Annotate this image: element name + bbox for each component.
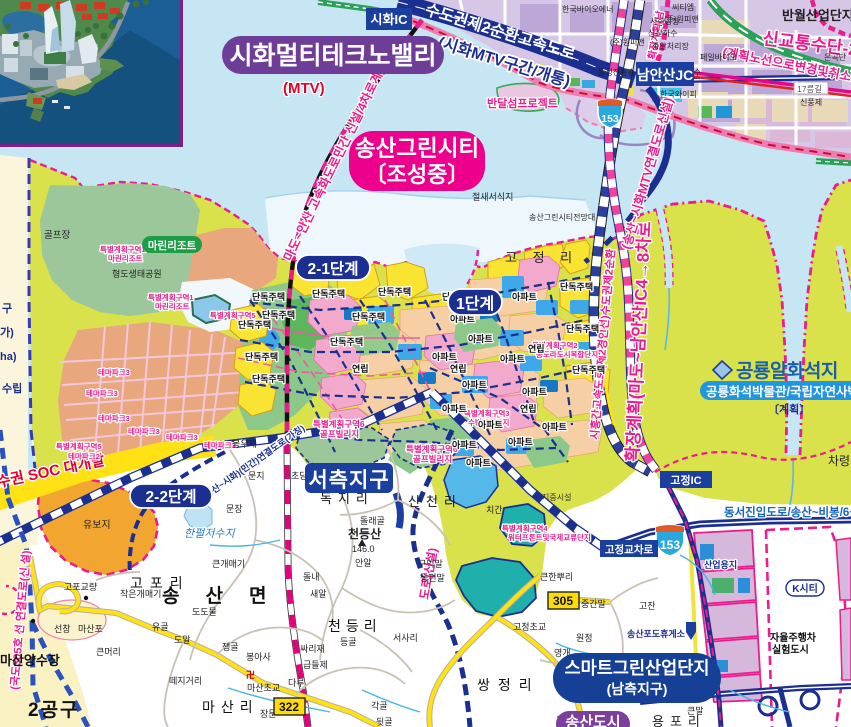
svg-text:마린리조트: 마린리조트 [148, 239, 197, 252]
svg-text:큰한뿌리: 큰한뿌리 [540, 572, 573, 582]
svg-text:떼지거리: 떼지거리 [169, 676, 202, 686]
svg-text:반달섬프로젝트: 반달섬프로젝트 [487, 96, 558, 110]
svg-text:아파트: 아파트 [522, 386, 548, 397]
svg-text:테마파크3: 테마파크3 [86, 388, 118, 398]
svg-text:아파트: 아파트 [442, 403, 468, 414]
svg-text:(MTV): (MTV) [283, 80, 325, 97]
svg-text:천등리: 천등리 [328, 618, 382, 634]
svg-text:특별계획구역5: 특별계획구역5 [56, 441, 102, 451]
svg-text:안알: 안알 [355, 558, 372, 568]
svg-text:절새서식지: 절새서식지 [472, 191, 513, 202]
svg-text:연립: 연립 [450, 363, 467, 374]
svg-text:특별계획구역1: 특별계획구역1 [148, 292, 194, 302]
svg-text:지중시설: 지중시설 [542, 492, 571, 502]
svg-text:큰머리: 큰머리 [96, 647, 121, 657]
svg-text:ha): ha) [0, 351, 17, 363]
svg-text:유보지: 유보지 [83, 519, 111, 531]
svg-text:K시티: K시티 [792, 582, 818, 595]
svg-text:반월산업단지: 반월산업단지 [782, 8, 851, 23]
svg-text:고정초교: 고정초교 [513, 622, 546, 632]
svg-text:한국와이피: 한국와이피 [660, 89, 697, 99]
svg-text:봉아사: 봉아사 [246, 652, 272, 662]
svg-text:동서진입도로/송산~비봉/6~8: 동서진입도로/송산~비봉/6~8 [724, 505, 851, 519]
svg-text:卍: 卍 [246, 670, 255, 680]
svg-text:송산그린시티전망대: 송산그린시티전망대 [529, 212, 595, 222]
svg-text:은곡단: 은곡단 [824, 52, 847, 62]
svg-text:단독주택: 단독주택 [560, 281, 593, 292]
svg-text:단독주택: 단독주택 [252, 291, 285, 302]
svg-text:싸리재: 싸리재 [300, 644, 325, 654]
svg-text:유골: 유골 [152, 622, 169, 632]
svg-text:등골: 등골 [340, 637, 357, 647]
svg-text:테마파크3: 테마파크3 [166, 432, 198, 442]
svg-text:다루: 다루 [288, 678, 305, 688]
svg-text:322: 322 [279, 700, 299, 714]
svg-text:큰말: 큰말 [687, 705, 704, 716]
svg-text:차령: 차령 [828, 454, 850, 468]
svg-text:서사리: 서사리 [393, 633, 418, 643]
svg-text:동편말: 동편말 [420, 572, 445, 583]
svg-text:〔조성중〕: 〔조성중〕 [365, 162, 470, 187]
svg-text:서측지구: 서측지구 [308, 469, 389, 492]
svg-text:송도라도시복합단지: 송도라도시복합단지 [536, 349, 598, 359]
svg-text:새알: 새알 [310, 589, 327, 599]
svg-text:신천리: 신천리 [408, 494, 462, 509]
svg-text:급들제: 급들제 [303, 660, 328, 670]
svg-text:공룡화석박물관/국립자연사박물: 공룡화석박물관/국립자연사박물 [706, 384, 851, 399]
svg-text:아파트: 아파트 [466, 457, 492, 468]
svg-text:구: 구 [2, 302, 12, 315]
svg-text:1단계: 1단계 [456, 294, 494, 313]
svg-text:구억말: 구억말 [418, 558, 443, 569]
svg-text:(남측지구): (남측지구) [607, 681, 668, 697]
svg-text:연립: 연립 [520, 403, 537, 414]
svg-text:단독주택: 단독주택 [252, 373, 285, 384]
svg-text:송산그린시티: 송산그린시티 [355, 136, 479, 161]
svg-text:특별계획구역6: 특별계획구역6 [406, 444, 458, 454]
svg-text:문지: 문지 [248, 471, 265, 481]
svg-text:뒷골: 뒷골 [376, 716, 393, 727]
svg-text:워터프론트및국제교류단지: 워터프론트및국제교류단지 [508, 532, 591, 542]
svg-text:아파트: 아파트 [452, 439, 478, 450]
svg-text:선창: 선창 [54, 624, 71, 634]
svg-text:단독주택: 단독주택 [262, 309, 295, 320]
svg-text:원정: 원정 [576, 633, 593, 643]
svg-text:연립: 연립 [528, 343, 545, 354]
svg-text:연립: 연립 [352, 363, 369, 374]
svg-text:고정교차로: 고정교차로 [605, 543, 654, 556]
svg-text:특별계획구역6: 특별계획구역6 [313, 419, 365, 429]
svg-text:마린리조트: 마린리조트 [108, 253, 143, 263]
svg-text:아파트: 아파트 [478, 419, 504, 430]
svg-text:씨티엠: 씨티엠 [672, 2, 694, 12]
svg-text:돌내: 돌내 [303, 572, 320, 582]
svg-text:153: 153 [601, 113, 619, 125]
svg-text:고 정 리: 고 정 리 [505, 250, 578, 265]
svg-text:시화공장: 시화공장 [650, 16, 680, 26]
svg-text:단독주택: 단독주택 [378, 286, 411, 297]
svg-text:각골: 각골 [371, 700, 388, 711]
svg-text:마산양수장: 마산양수장 [0, 653, 60, 668]
svg-text:〔계획〕: 〔계획〕 [768, 402, 810, 416]
svg-text:실험도시: 실험도시 [772, 643, 809, 656]
svg-text:송산도시: 송산도시 [565, 714, 620, 727]
svg-text:한펄저수지: 한펄저수지 [184, 527, 235, 540]
svg-text:큰개매기: 큰개매기 [212, 559, 245, 569]
svg-text:도알: 도알 [174, 635, 191, 645]
svg-text:수립: 수립 [2, 382, 22, 395]
svg-text:쌍정리: 쌍정리 [477, 677, 540, 693]
svg-text:특별계획구역5: 특별계획구역5 [210, 310, 256, 320]
svg-text:천등산: 천등산 [348, 526, 381, 541]
svg-text:테마파크3: 테마파크3 [128, 426, 160, 436]
svg-text:단독주택: 단독주택 [238, 319, 271, 330]
svg-text:테마파크3: 테마파크3 [204, 440, 236, 450]
svg-text:테마파크3: 테마파크3 [98, 413, 130, 423]
svg-text:305: 305 [553, 594, 573, 608]
svg-text:아파트: 아파트 [462, 379, 488, 390]
svg-text:2-1단계: 2-1단계 [308, 259, 359, 278]
svg-text:아파트: 아파트 [542, 421, 568, 432]
svg-text:(주)원피앤: (주)원피앤 [610, 37, 645, 47]
svg-text:특별계획구역4: 특별계획구역4 [502, 523, 548, 533]
svg-text:고정IC: 고정IC [670, 473, 701, 487]
svg-text:골프빌리지: 골프빌리지 [320, 429, 359, 439]
svg-text:아파트: 아파트 [468, 333, 494, 344]
svg-text:테마파크2: 테마파크2 [68, 451, 100, 461]
svg-text:2공구: 2공구 [28, 700, 80, 721]
svg-text:아파트: 아파트 [500, 353, 526, 364]
svg-text:단독주택: 단독주택 [312, 288, 345, 299]
svg-text:아파트: 아파트 [508, 436, 534, 447]
svg-text:문장: 문장 [226, 504, 243, 514]
svg-text:스마트그린산업단지: 스마트그린산업단지 [565, 658, 710, 678]
svg-text:특별계획구역1: 특별계획구역1 [100, 244, 146, 254]
svg-text:마산리: 마산리 [202, 699, 259, 715]
svg-text:시화IC: 시화IC [371, 12, 409, 27]
svg-text:송산면: 송산면 [162, 585, 292, 607]
svg-text:단독주택: 단독주택 [572, 364, 605, 375]
svg-text:골프빌리지: 골프빌리지 [413, 454, 452, 464]
svg-text:아파트: 아파트 [512, 291, 538, 302]
svg-text:단독주택: 단독주택 [352, 311, 385, 322]
svg-text:돌래골: 돌래골 [360, 516, 385, 526]
svg-text:중알처리장: 중알처리장 [652, 41, 689, 51]
svg-text:단독주택: 단독주택 [566, 323, 599, 334]
svg-text:독지리: 독지리 [320, 491, 374, 506]
svg-text:중간말: 중간말 [581, 598, 606, 609]
svg-text:산산하수: 산산하수 [648, 28, 677, 38]
svg-text:자율주행차: 자율주행차 [770, 631, 817, 644]
svg-text:쟁골: 쟁골 [222, 642, 239, 652]
svg-text:17름길: 17름길 [797, 84, 822, 94]
svg-text:골프장: 골프장 [44, 230, 70, 241]
svg-text:고포교량: 고포교량 [64, 581, 97, 592]
svg-text:신풍제: 신풍제 [800, 98, 822, 107]
svg-text:페일바이오: 페일바이오 [700, 52, 737, 62]
svg-text:테마파크3: 테마파크3 [98, 367, 130, 377]
svg-text:단독주택: 단독주택 [330, 336, 363, 347]
svg-text:특별계획구역3: 특별계획구역3 [464, 408, 510, 418]
svg-text:아파트: 아파트 [432, 351, 458, 362]
svg-text:송산포도휴게소: 송산포도휴게소 [627, 628, 686, 639]
svg-text:가): 가) [0, 325, 14, 339]
svg-text:고잔: 고잔 [639, 601, 656, 611]
svg-text:한국바이오에너: 한국바이오에너 [562, 4, 614, 14]
svg-text:산업용지: 산업용지 [704, 559, 737, 570]
svg-text:단독주택: 단독주택 [245, 351, 278, 362]
svg-text:공룡알화석지: 공룡알화석지 [736, 360, 838, 382]
svg-text:2-2단계: 2-2단계 [146, 487, 197, 506]
svg-text:도도물: 도도물 [192, 607, 217, 617]
svg-text:마린리조트: 마린리조트 [155, 301, 190, 311]
svg-text:153: 153 [660, 538, 680, 552]
svg-text:마산초교: 마산초교 [247, 683, 280, 693]
svg-text:시화멀티테크노밸리: 시화멀티테크노밸리 [229, 42, 436, 70]
svg-text:마산포: 마산포 [78, 624, 103, 634]
svg-text:치간: 치간 [486, 504, 503, 515]
svg-text:봉우재: 봉우재 [232, 439, 257, 449]
svg-text:형도생태공원: 형도생태공원 [112, 269, 162, 279]
svg-text:남안산JC: 남안산JC [637, 67, 694, 83]
